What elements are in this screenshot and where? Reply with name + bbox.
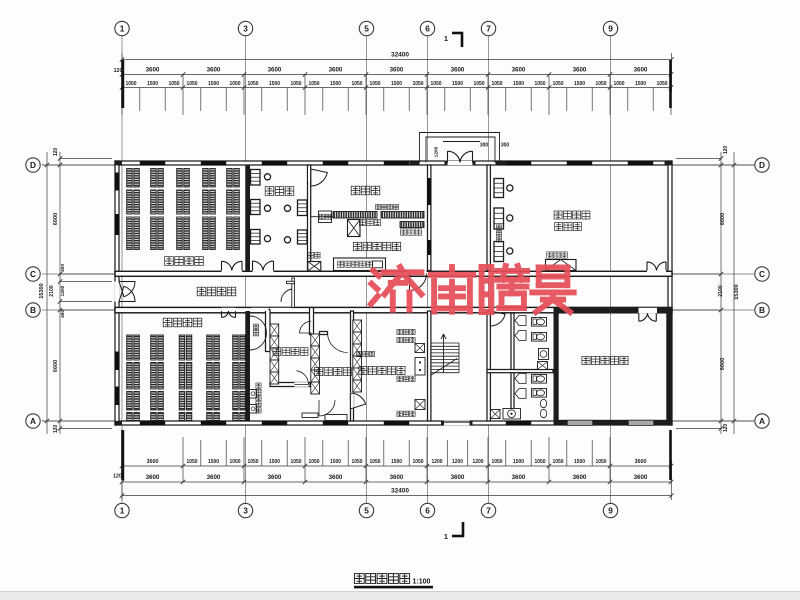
- svg-text:1200: 1200: [452, 459, 463, 465]
- svg-text:1050: 1050: [595, 81, 606, 87]
- svg-text:120: 120: [53, 148, 59, 157]
- svg-text:1050: 1050: [613, 81, 624, 87]
- svg-text:1050: 1050: [412, 459, 423, 465]
- svg-text:120: 120: [113, 474, 122, 480]
- svg-text:1500: 1500: [208, 81, 219, 87]
- svg-text:3: 3: [243, 23, 248, 33]
- svg-text:120: 120: [114, 68, 123, 74]
- svg-text:1050: 1050: [552, 81, 563, 87]
- svg-text:1500: 1500: [208, 459, 219, 465]
- svg-text:1050: 1050: [595, 459, 606, 465]
- svg-text:15300: 15300: [39, 283, 45, 299]
- svg-text:1050: 1050: [369, 81, 380, 87]
- svg-text:450: 450: [60, 264, 66, 272]
- svg-text:1200: 1200: [60, 285, 66, 296]
- svg-text:3600: 3600: [390, 67, 404, 74]
- svg-text:3600: 3600: [573, 474, 587, 481]
- svg-text:1500: 1500: [147, 81, 158, 87]
- svg-text:1050: 1050: [534, 459, 545, 465]
- svg-text:32400: 32400: [391, 52, 409, 59]
- svg-text:B: B: [30, 305, 36, 315]
- svg-text:A: A: [30, 416, 36, 426]
- svg-text:1: 1: [120, 505, 125, 515]
- svg-text:6600: 6600: [53, 213, 59, 225]
- svg-text:6: 6: [425, 505, 430, 515]
- svg-text:3600: 3600: [146, 474, 160, 481]
- svg-text:1050: 1050: [290, 81, 301, 87]
- svg-text:3600: 3600: [451, 474, 465, 481]
- svg-text:7: 7: [486, 23, 491, 33]
- svg-text:3600: 3600: [451, 67, 465, 74]
- svg-text:15300: 15300: [734, 284, 740, 300]
- svg-text:1500: 1500: [574, 459, 585, 465]
- svg-text:1050: 1050: [247, 81, 258, 87]
- svg-text:1500: 1500: [330, 459, 341, 465]
- svg-text:6600: 6600: [720, 358, 726, 370]
- svg-text:120: 120: [723, 146, 729, 155]
- svg-text:3600: 3600: [634, 474, 648, 481]
- svg-text:1200: 1200: [472, 459, 483, 465]
- svg-text:9: 9: [608, 505, 613, 515]
- svg-text:1050: 1050: [186, 81, 197, 87]
- svg-text:1050: 1050: [351, 459, 362, 465]
- svg-text:1050: 1050: [308, 81, 319, 87]
- svg-text:1500: 1500: [513, 81, 524, 87]
- svg-text:1:100: 1:100: [413, 579, 431, 586]
- svg-text:3600: 3600: [512, 474, 526, 481]
- svg-text:1050: 1050: [412, 81, 423, 87]
- svg-text:1: 1: [444, 36, 448, 43]
- svg-text:120: 120: [723, 424, 729, 433]
- svg-text:1: 1: [444, 534, 448, 541]
- svg-text:1050: 1050: [491, 459, 502, 465]
- svg-text:C: C: [30, 269, 36, 279]
- svg-text:1200: 1200: [434, 146, 440, 157]
- svg-text:1050: 1050: [308, 459, 319, 465]
- svg-text:3600: 3600: [634, 67, 648, 74]
- svg-text:1500: 1500: [269, 459, 280, 465]
- svg-text:1050: 1050: [656, 81, 667, 87]
- svg-text:1050: 1050: [430, 81, 441, 87]
- svg-text:1500: 1500: [635, 81, 646, 87]
- svg-text:1500: 1500: [452, 81, 463, 87]
- svg-text:1500: 1500: [391, 459, 402, 465]
- svg-text:3: 3: [243, 505, 248, 515]
- svg-text:9: 9: [608, 23, 613, 33]
- svg-text:1050: 1050: [552, 459, 563, 465]
- svg-text:3600: 3600: [268, 67, 282, 74]
- svg-text:B: B: [759, 305, 765, 315]
- svg-text:1500: 1500: [269, 81, 280, 87]
- svg-text:A: A: [759, 416, 765, 426]
- svg-text:3600: 3600: [329, 67, 343, 74]
- svg-text:2100: 2100: [49, 285, 55, 297]
- svg-text:D: D: [30, 160, 36, 170]
- svg-text:D: D: [759, 160, 765, 170]
- svg-text:5: 5: [364, 23, 369, 33]
- svg-text:450: 450: [60, 310, 66, 318]
- svg-text:3600: 3600: [512, 67, 526, 74]
- svg-text:1050: 1050: [229, 81, 240, 87]
- svg-text:3600: 3600: [146, 67, 160, 74]
- svg-text:1050: 1050: [491, 81, 502, 87]
- svg-text:120: 120: [53, 425, 59, 434]
- svg-text:1500: 1500: [574, 81, 585, 87]
- svg-text:1050: 1050: [125, 81, 136, 87]
- svg-text:1500: 1500: [391, 81, 402, 87]
- svg-text:3600: 3600: [573, 67, 587, 74]
- svg-text:3600: 3600: [207, 67, 221, 74]
- svg-text:C: C: [759, 269, 765, 279]
- svg-text:300: 300: [480, 143, 489, 149]
- svg-text:1050: 1050: [229, 459, 240, 465]
- svg-text:1050: 1050: [473, 81, 484, 87]
- svg-text:6600: 6600: [720, 213, 726, 225]
- svg-text:1050: 1050: [186, 459, 197, 465]
- svg-text:5: 5: [364, 505, 369, 515]
- svg-text:1050: 1050: [168, 81, 179, 87]
- svg-text:1050: 1050: [290, 459, 301, 465]
- svg-text:3600: 3600: [329, 474, 343, 481]
- svg-text:32400: 32400: [391, 488, 409, 495]
- svg-text:3600: 3600: [147, 459, 159, 465]
- svg-text:1500: 1500: [330, 81, 341, 87]
- svg-text:300: 300: [501, 143, 510, 149]
- svg-text:1200: 1200: [431, 459, 442, 465]
- svg-text:1: 1: [120, 23, 125, 33]
- svg-text:1050: 1050: [247, 459, 258, 465]
- svg-text:1050: 1050: [351, 81, 362, 87]
- svg-text:6600: 6600: [53, 360, 59, 372]
- svg-text:1500: 1500: [513, 459, 524, 465]
- svg-text:3600: 3600: [390, 474, 404, 481]
- svg-text:3600: 3600: [635, 459, 647, 465]
- svg-text:6: 6: [425, 23, 430, 33]
- svg-text:3600: 3600: [268, 474, 282, 481]
- svg-text:2100: 2100: [718, 285, 724, 297]
- svg-text:3600: 3600: [207, 474, 221, 481]
- svg-text:7: 7: [486, 505, 491, 515]
- svg-text:1050: 1050: [369, 459, 380, 465]
- svg-text:1050: 1050: [534, 81, 545, 87]
